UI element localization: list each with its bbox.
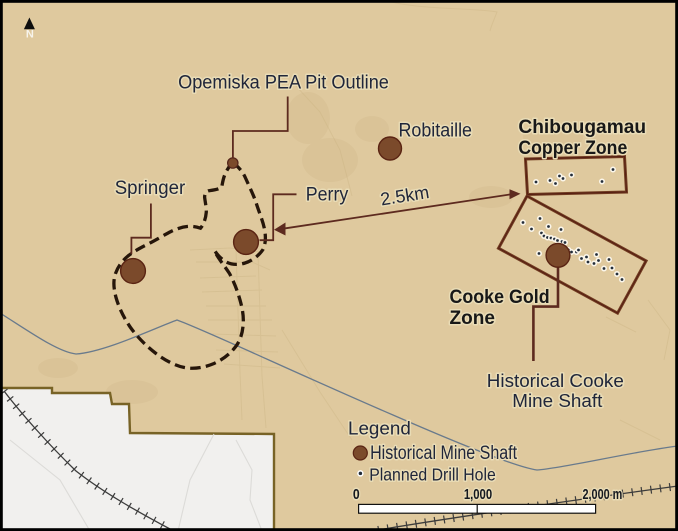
- svg-text:Mine Shaft: Mine Shaft: [512, 390, 602, 411]
- svg-text:N: N: [26, 29, 34, 41]
- svg-text:2,000 m: 2,000 m: [583, 486, 623, 503]
- svg-text:Perry: Perry: [306, 185, 349, 206]
- svg-text:Planned Drill Hole: Planned Drill Hole: [369, 464, 496, 484]
- svg-text:Opemiska PEA Pit Outline: Opemiska PEA Pit Outline: [178, 73, 389, 94]
- svg-text:Robitaille: Robitaille: [399, 121, 473, 142]
- svg-text:Legend: Legend: [348, 418, 411, 439]
- svg-text:Chibougamau: Chibougamau: [518, 117, 646, 138]
- svg-text:0: 0: [353, 486, 360, 503]
- svg-text:1,000: 1,000: [464, 486, 492, 503]
- svg-text:Historical Mine Shaft: Historical Mine Shaft: [370, 443, 518, 464]
- svg-text:Cooke Gold: Cooke Gold: [450, 287, 550, 308]
- svg-text:Copper Zone: Copper Zone: [518, 138, 627, 159]
- svg-text:Historical Cooke: Historical Cooke: [487, 370, 624, 391]
- svg-text:Springer: Springer: [115, 178, 186, 199]
- svg-text:Zone: Zone: [450, 308, 495, 329]
